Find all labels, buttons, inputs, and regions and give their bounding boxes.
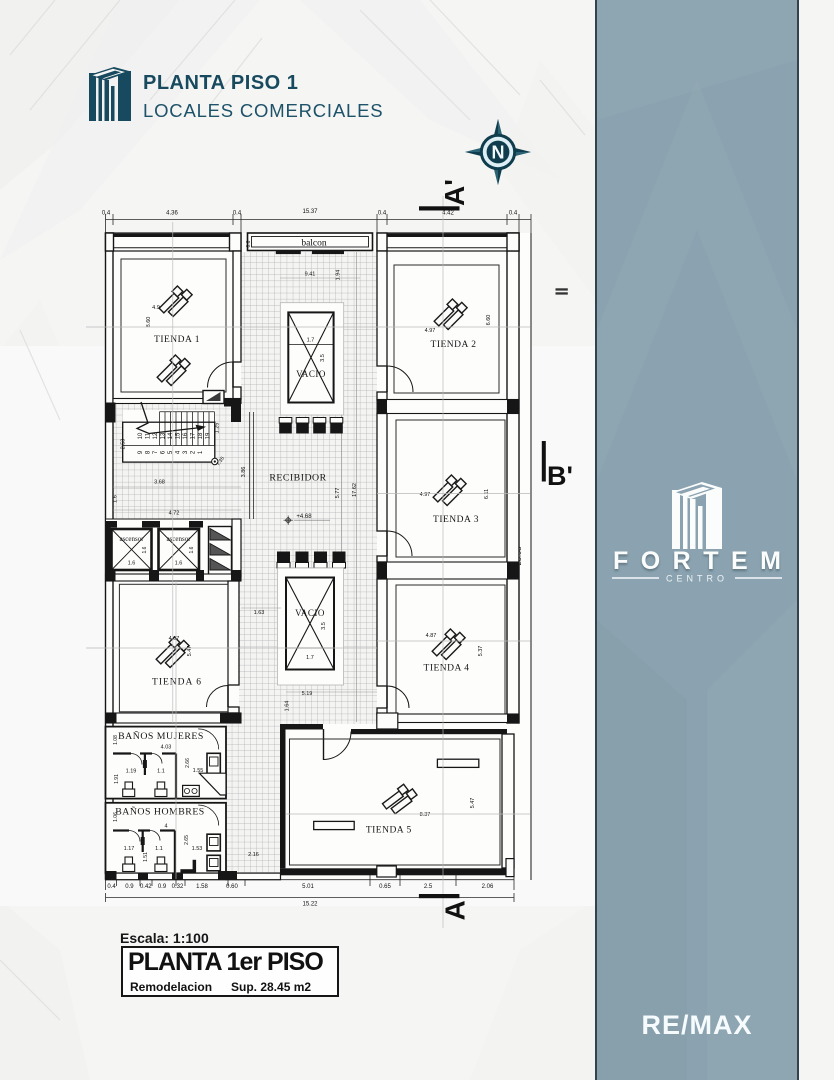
svg-text:13: 13 xyxy=(161,432,167,439)
svg-text:5.01: 5.01 xyxy=(302,884,314,890)
svg-text:1.91: 1.91 xyxy=(114,774,120,784)
svg-text:2.06: 2.06 xyxy=(482,884,494,890)
svg-text:4.03: 4.03 xyxy=(161,745,172,751)
svg-text:4.72: 4.72 xyxy=(169,511,180,517)
svg-text:0.60: 0.60 xyxy=(226,884,238,890)
svg-text:9.41: 9.41 xyxy=(305,272,316,278)
svg-text:1.7: 1.7 xyxy=(306,655,314,661)
svg-text:3.68: 3.68 xyxy=(154,480,165,486)
svg-text:2.65: 2.65 xyxy=(184,835,190,845)
svg-text:1.94: 1.94 xyxy=(336,270,342,281)
svg-text:2.5: 2.5 xyxy=(424,884,433,890)
svg-text:15.22: 15.22 xyxy=(302,902,318,908)
svg-text:ascensor: ascensor xyxy=(166,535,191,543)
svg-text:6.60: 6.60 xyxy=(486,315,492,326)
svg-text:TIENDA 5: TIENDA 5 xyxy=(366,826,412,836)
svg-text:VACIO: VACIO xyxy=(295,608,325,618)
svg-text:1.25: 1.25 xyxy=(215,423,221,434)
svg-text:2.16: 2.16 xyxy=(248,852,259,858)
svg-text:BAÑOS HOMBRES: BAÑOS HOMBRES xyxy=(115,806,205,818)
svg-text:1.7: 1.7 xyxy=(307,338,315,344)
svg-text:BAÑOS MUJERES: BAÑOS MUJERES xyxy=(118,730,204,742)
svg-text:1.63: 1.63 xyxy=(254,610,265,616)
svg-text:10: 10 xyxy=(138,432,144,439)
svg-text:1.51: 1.51 xyxy=(143,852,149,862)
svg-text:19: 19 xyxy=(206,432,212,439)
svg-text:0.4: 0.4 xyxy=(378,211,387,217)
svg-text:0.42: 0.42 xyxy=(140,884,152,890)
svg-text:RECIBIDOR: RECIBIDOR xyxy=(269,473,326,484)
svg-text:TIENDA 4: TIENDA 4 xyxy=(424,664,470,674)
svg-text:1.64: 1.64 xyxy=(285,701,291,712)
svg-text:8.60: 8.60 xyxy=(146,317,152,328)
svg-text:1.6: 1.6 xyxy=(142,546,148,553)
svg-text:+4.68: +4.68 xyxy=(296,514,312,520)
svg-text:A': A' xyxy=(439,179,470,206)
svg-text:4: 4 xyxy=(164,824,167,830)
svg-text:TIENDA 1: TIENDA 1 xyxy=(154,335,200,345)
svg-text:0.9: 0.9 xyxy=(158,884,167,890)
svg-text:1.6: 1.6 xyxy=(189,546,195,553)
svg-text:6.11: 6.11 xyxy=(484,489,490,499)
svg-text:1.1: 1.1 xyxy=(155,846,163,852)
svg-text:balcon: balcon xyxy=(301,239,327,249)
svg-text:18: 18 xyxy=(198,432,204,439)
svg-text:3.5: 3.5 xyxy=(320,354,326,362)
svg-text:1.08: 1.08 xyxy=(113,735,119,745)
svg-text:1.58: 1.58 xyxy=(196,884,208,890)
svg-text:4.42: 4.42 xyxy=(442,211,454,217)
svg-text:0.4: 0.4 xyxy=(107,884,116,890)
svg-text:1.06: 1.06 xyxy=(113,812,119,822)
svg-text:0.65: 0.65 xyxy=(379,884,391,890)
svg-text:0.32: 0.32 xyxy=(172,884,184,890)
svg-text:1.53: 1.53 xyxy=(192,846,203,852)
svg-text:VACIO: VACIO xyxy=(296,369,326,379)
svg-text:3.5: 3.5 xyxy=(321,622,327,630)
svg-text:TIENDA 3: TIENDA 3 xyxy=(433,515,479,525)
svg-text:16: 16 xyxy=(183,432,189,439)
svg-text:2.53: 2.53 xyxy=(121,439,127,450)
svg-text:0.9: 0.9 xyxy=(125,884,134,890)
svg-text:8.37: 8.37 xyxy=(420,812,431,818)
svg-text:TIENDA 6: TIENDA 6 xyxy=(152,678,202,688)
svg-text:3.86: 3.86 xyxy=(241,467,247,478)
svg-text:1.1: 1.1 xyxy=(157,769,165,775)
svg-text:0.4: 0.4 xyxy=(233,211,242,217)
svg-text:5.37: 5.37 xyxy=(478,646,484,657)
svg-text:A: A xyxy=(440,900,471,920)
svg-text:4.97: 4.97 xyxy=(420,492,431,498)
svg-text:15: 15 xyxy=(176,432,182,439)
svg-text:1.19: 1.19 xyxy=(126,769,137,775)
svg-text:TIENDA 2: TIENDA 2 xyxy=(431,340,477,350)
svg-text:ascensor: ascensor xyxy=(119,535,144,543)
svg-text:0.6: 0.6 xyxy=(246,240,252,247)
svg-text:4.9: 4.9 xyxy=(152,305,160,311)
svg-text:0.4: 0.4 xyxy=(509,211,518,217)
svg-text:0.4: 0.4 xyxy=(102,211,111,217)
svg-text:4.07: 4.07 xyxy=(169,636,180,642)
svg-text:4.97: 4.97 xyxy=(425,328,436,334)
svg-text:4.87: 4.87 xyxy=(426,633,437,639)
svg-text:4.36: 4.36 xyxy=(166,211,178,217)
svg-text:1.17: 1.17 xyxy=(124,846,135,852)
svg-text:5.47: 5.47 xyxy=(470,798,476,809)
svg-text:17.62: 17.62 xyxy=(352,483,358,497)
svg-text:1.6: 1.6 xyxy=(175,561,183,567)
svg-text:5.47: 5.47 xyxy=(187,646,193,657)
svg-text:15.37: 15.37 xyxy=(302,209,318,215)
svg-text:17: 17 xyxy=(191,432,197,439)
svg-text:B': B' xyxy=(547,461,573,491)
svg-text:1.6: 1.6 xyxy=(128,561,136,567)
svg-text:1.6: 1.6 xyxy=(113,495,119,503)
svg-text:2.66: 2.66 xyxy=(185,758,191,768)
svg-text:5.77: 5.77 xyxy=(335,488,341,499)
